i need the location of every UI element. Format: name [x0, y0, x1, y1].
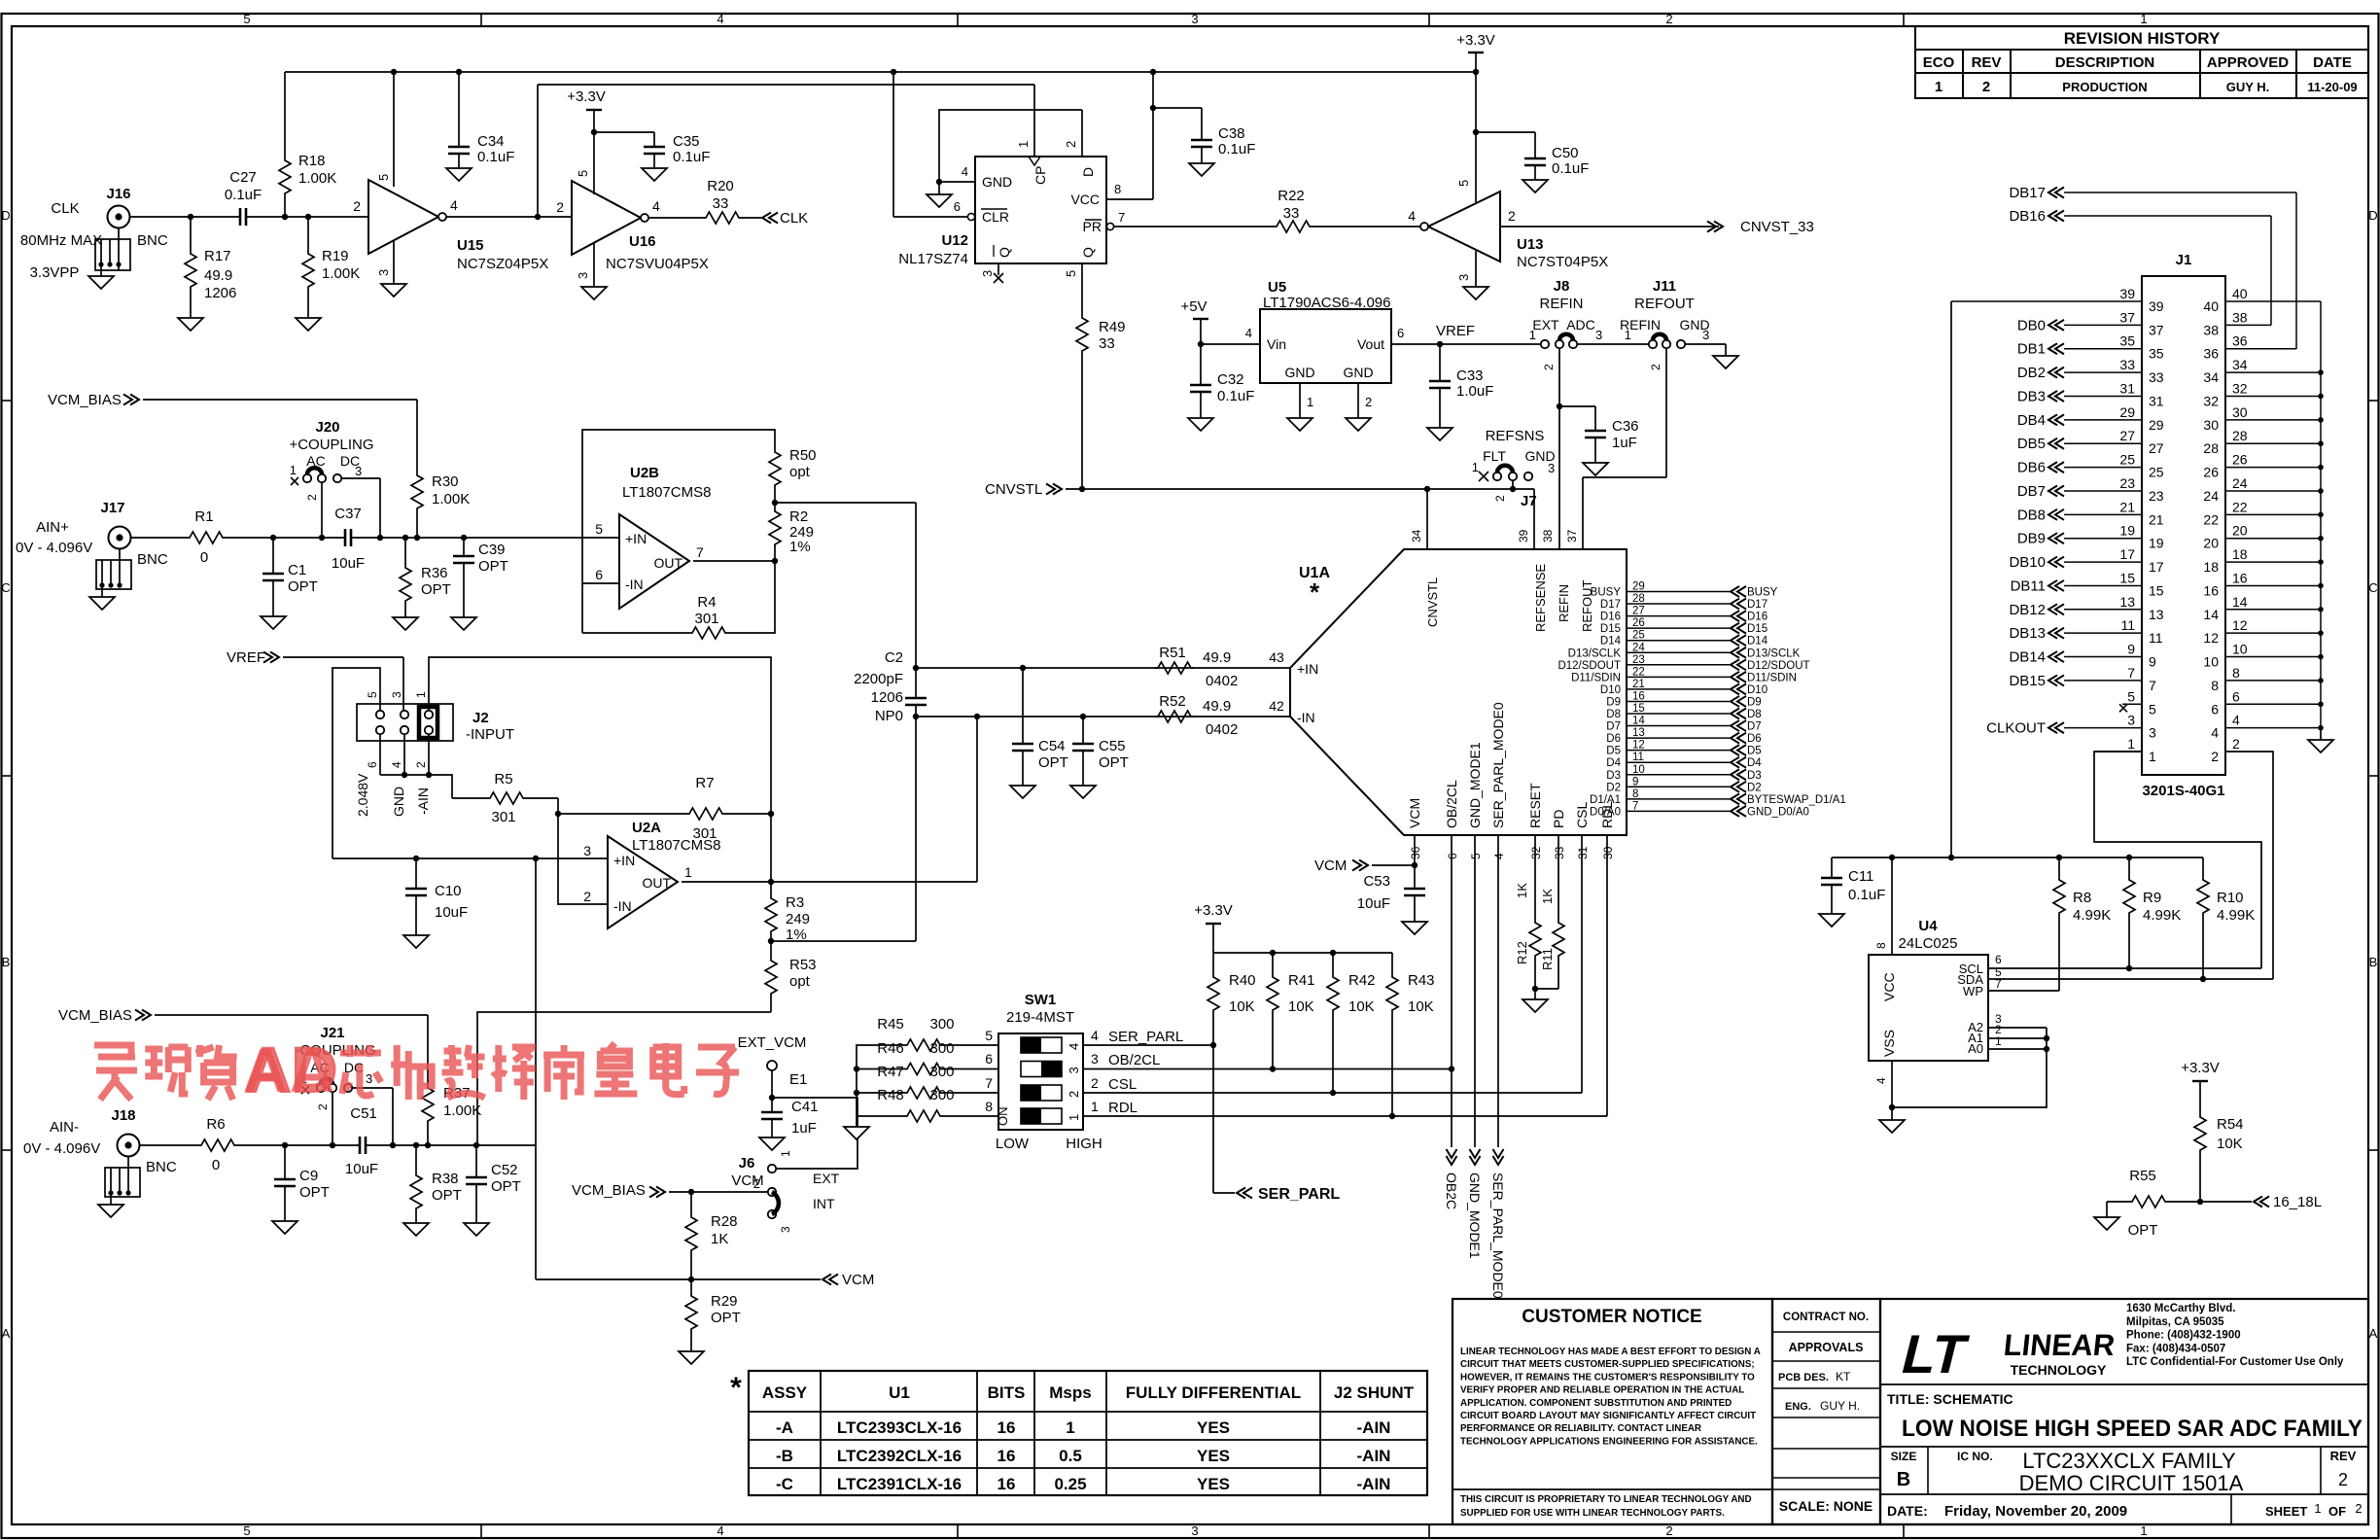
svg-text:U13: U13	[1517, 236, 1544, 253]
svg-text:7: 7	[2149, 678, 2156, 693]
svg-text:33: 33	[2119, 357, 2135, 372]
svg-text:7: 7	[1118, 210, 1125, 225]
svg-text:DB16: DB16	[2009, 208, 2046, 225]
svg-text:12: 12	[2232, 617, 2248, 633]
svg-text:opt: opt	[789, 464, 811, 480]
svg-text:2: 2	[1067, 1091, 1081, 1098]
svg-text:VCC: VCC	[1881, 972, 1897, 1001]
svg-text:OPT: OPT	[299, 1184, 330, 1201]
svg-text:GND: GND	[1284, 365, 1314, 380]
svg-text:TITLE: SCHEMATIC: TITLE: SCHEMATIC	[1887, 1391, 2013, 1407]
svg-text:1uF: 1uF	[791, 1120, 817, 1137]
svg-text:R20: R20	[707, 178, 734, 194]
svg-text:J16: J16	[106, 186, 130, 202]
svg-text:-AIN: -AIN	[1357, 1418, 1391, 1437]
svg-text:15: 15	[2119, 570, 2135, 585]
svg-text:0V - 4.096V: 0V - 4.096V	[23, 1140, 100, 1157]
svg-text:REFIN: REFIN	[1540, 296, 1584, 312]
svg-text:12: 12	[1632, 740, 1645, 752]
svg-text:1: 1	[684, 864, 692, 880]
svg-text:36: 36	[1409, 846, 1422, 859]
svg-text:219-4MST: 219-4MST	[1006, 1009, 1074, 1026]
svg-text:8: 8	[1632, 788, 1638, 800]
svg-text:REFIN: REFIN	[1557, 584, 1571, 622]
svg-text:VCM: VCM	[1314, 857, 1347, 874]
svg-text:10K: 10K	[1288, 998, 1314, 1015]
svg-text:4: 4	[717, 1523, 723, 1538]
svg-text:1.00K: 1.00K	[432, 491, 470, 507]
svg-text:1: 1	[2149, 749, 2156, 764]
svg-text:6: 6	[1446, 853, 1459, 859]
svg-text:37: 37	[2119, 309, 2135, 325]
svg-text:BITS: BITS	[988, 1383, 1026, 1402]
svg-text:C11: C11	[1848, 868, 1873, 885]
svg-text:OB2C: OB2C	[1444, 1172, 1459, 1209]
svg-text:OUT: OUT	[653, 555, 682, 571]
svg-text:R30: R30	[432, 473, 459, 490]
svg-text:A: A	[2, 1326, 11, 1341]
svg-text:NC7ST04P5X: NC7ST04P5X	[1517, 254, 1608, 270]
svg-text:1uF: 1uF	[1612, 435, 1637, 451]
svg-text:+3.3V: +3.3V	[1456, 32, 1495, 49]
svg-text:1: 1	[1066, 1418, 1074, 1437]
svg-text:3: 3	[1595, 328, 1602, 342]
svg-text:C51: C51	[350, 1105, 377, 1122]
svg-text:BNC: BNC	[137, 232, 168, 249]
svg-text:39: 39	[2149, 298, 2164, 314]
svg-text:VCM_BIAS: VCM_BIAS	[48, 392, 122, 408]
svg-text:R8: R8	[2073, 890, 2091, 906]
svg-text:17: 17	[2119, 546, 2135, 562]
svg-text:31: 31	[1576, 846, 1590, 859]
svg-text:D15: D15	[1747, 623, 1767, 635]
svg-text:7: 7	[1995, 977, 2002, 991]
svg-text:1: 1	[1625, 328, 1631, 342]
svg-text:A: A	[2369, 1326, 2378, 1341]
svg-text:3: 3	[1191, 1523, 1198, 1538]
svg-text:24LC025: 24LC025	[1899, 935, 1958, 952]
svg-text:R53: R53	[789, 957, 817, 973]
svg-text:9: 9	[2149, 654, 2156, 670]
svg-text:3: 3	[1067, 1067, 1081, 1073]
svg-text:5: 5	[243, 12, 250, 26]
svg-text:1K: 1K	[711, 1231, 728, 1247]
svg-text:R48: R48	[877, 1087, 904, 1103]
svg-text:NC7SVU04P5X: NC7SVU04P5X	[606, 256, 709, 272]
svg-text:U12: U12	[941, 232, 968, 249]
svg-text:13: 13	[1632, 727, 1645, 739]
svg-text:J1: J1	[2176, 252, 2192, 268]
svg-text:15: 15	[1632, 703, 1645, 715]
svg-text:Vin: Vin	[1267, 336, 1286, 352]
svg-text:REV: REV	[2330, 1449, 2357, 1463]
svg-text:DB2: DB2	[2017, 365, 2046, 381]
svg-text:2: 2	[1649, 364, 1662, 370]
svg-text:C32: C32	[1217, 371, 1244, 388]
svg-text:10K: 10K	[1408, 998, 1434, 1015]
svg-text:LINEAR TECHNOLOGY HAS MADE A B: LINEAR TECHNOLOGY HAS MADE A BEST EFFORT…	[1460, 1347, 1761, 1357]
svg-text:7: 7	[985, 1075, 993, 1091]
svg-text:5: 5	[2127, 688, 2135, 704]
svg-text:36: 36	[2203, 346, 2219, 362]
svg-text:6: 6	[2232, 688, 2240, 704]
svg-text:R19: R19	[322, 248, 349, 264]
svg-text:RDL: RDL	[1599, 801, 1615, 828]
svg-text:CUSTOMER NOTICE: CUSTOMER NOTICE	[1522, 1307, 1701, 1327]
svg-text:5: 5	[576, 170, 590, 177]
svg-text:J18: J18	[111, 1107, 135, 1124]
svg-text:25: 25	[2149, 465, 2164, 480]
svg-text:U15: U15	[457, 237, 484, 254]
svg-text:301: 301	[694, 611, 718, 627]
svg-text:R38: R38	[432, 1171, 459, 1187]
svg-text:2: 2	[1982, 79, 1990, 95]
svg-text:2: 2	[1091, 1075, 1099, 1091]
svg-text:33: 33	[1099, 335, 1115, 352]
svg-text:R43: R43	[1408, 972, 1435, 989]
svg-text:C1: C1	[288, 562, 306, 578]
svg-text:11: 11	[2120, 617, 2135, 633]
svg-text:B: B	[2, 955, 11, 969]
svg-text:2: 2	[1508, 208, 1516, 224]
svg-text:SCALE: NONE: SCALE: NONE	[1779, 1498, 1872, 1514]
svg-text:3: 3	[2149, 725, 2156, 741]
svg-text:D15: D15	[1600, 623, 1621, 635]
svg-text:37: 37	[2149, 322, 2164, 337]
svg-text:1: 1	[2140, 1523, 2147, 1538]
svg-text:U4: U4	[1918, 918, 1938, 934]
svg-text:DB12: DB12	[2009, 602, 2046, 618]
svg-text:OF: OF	[2328, 1504, 2346, 1519]
svg-text:3201S-40G1: 3201S-40G1	[2142, 783, 2224, 799]
svg-text:D7: D7	[1747, 721, 1762, 733]
svg-text:0.1uF: 0.1uF	[1552, 160, 1589, 177]
svg-text:D7: D7	[1606, 721, 1621, 733]
svg-text:33: 33	[713, 195, 729, 212]
svg-text:VERIFY PROPER AND RELIABLE OPE: VERIFY PROPER AND RELIABLE OPERATION IN …	[1460, 1385, 1744, 1396]
svg-text:1: 1	[414, 691, 428, 698]
svg-text:10: 10	[2203, 654, 2219, 670]
svg-text:2: 2	[556, 199, 564, 215]
svg-text:OPT: OPT	[478, 558, 508, 575]
svg-text:CSL: CSL	[1108, 1076, 1137, 1093]
svg-text:11-20-09: 11-20-09	[2307, 80, 2357, 94]
svg-text:R7: R7	[695, 775, 714, 791]
svg-text:U1: U1	[889, 1383, 910, 1402]
svg-text:3: 3	[376, 269, 391, 276]
svg-text:35: 35	[2149, 346, 2164, 362]
svg-text:R12: R12	[1515, 941, 1529, 964]
svg-text:D17: D17	[1600, 599, 1621, 611]
svg-text:33: 33	[1553, 846, 1566, 859]
svg-text:4.99K: 4.99K	[2217, 907, 2255, 924]
svg-text:CNVSTL: CNVSTL	[1425, 577, 1440, 627]
svg-text:1.00K: 1.00K	[322, 265, 360, 282]
svg-text:2: 2	[2232, 736, 2240, 752]
svg-text:2: 2	[414, 761, 428, 768]
svg-text:A0: A0	[1968, 1041, 1983, 1056]
svg-text:D: D	[1, 208, 10, 223]
svg-text:1: 1	[2140, 12, 2147, 26]
svg-text:+5V: +5V	[1180, 298, 1207, 315]
svg-text:3.3VPP: 3.3VPP	[30, 264, 80, 281]
svg-text:CONTRACT NO.: CONTRACT NO.	[1783, 1312, 1869, 1323]
svg-text:D6: D6	[1606, 733, 1621, 745]
svg-text:1: 1	[1995, 1034, 2002, 1048]
svg-text:D12/SDOUT: D12/SDOUT	[1557, 660, 1621, 672]
svg-text:16: 16	[997, 1418, 1016, 1437]
svg-text:16: 16	[1632, 690, 1645, 702]
svg-text:+IN: +IN	[613, 853, 635, 868]
svg-text:C54: C54	[1038, 738, 1066, 754]
svg-text:+3.3V: +3.3V	[1194, 902, 1233, 919]
svg-text:R22: R22	[1277, 188, 1305, 204]
svg-text:CLR: CLR	[982, 209, 1009, 225]
svg-text:VCM_BIAS: VCM_BIAS	[572, 1182, 646, 1199]
svg-text:14: 14	[2203, 607, 2219, 622]
svg-text:3: 3	[355, 464, 362, 478]
svg-text:17: 17	[2149, 559, 2164, 575]
svg-text:0.1uF: 0.1uF	[225, 187, 262, 203]
svg-text:J11: J11	[1653, 278, 1676, 295]
svg-text:C55: C55	[1099, 738, 1126, 754]
svg-text:1206: 1206	[871, 689, 903, 706]
svg-text:0.1uF: 0.1uF	[1217, 388, 1254, 404]
svg-text:C36: C36	[1612, 418, 1639, 435]
svg-text:CSL: CSL	[1574, 802, 1590, 828]
svg-text:14: 14	[1632, 716, 1645, 727]
svg-text:ASSY: ASSY	[762, 1383, 808, 1402]
svg-text:D14: D14	[1600, 636, 1622, 647]
svg-text:D10: D10	[1600, 684, 1621, 696]
svg-text:10: 10	[1632, 764, 1645, 776]
svg-text:8: 8	[2232, 665, 2240, 681]
svg-text:6: 6	[954, 199, 961, 214]
svg-text:0.25: 0.25	[1054, 1475, 1086, 1493]
svg-text:300: 300	[929, 1064, 954, 1080]
svg-text:EXT: EXT	[813, 1171, 840, 1186]
svg-text:4: 4	[1245, 326, 1252, 340]
svg-text:0.1uF: 0.1uF	[1848, 887, 1885, 903]
svg-text:TECHNOLOGY APPLICATIONS ENGINE: TECHNOLOGY APPLICATIONS ENGINEERING FOR …	[1460, 1436, 1758, 1447]
svg-text:30: 30	[2203, 417, 2219, 433]
svg-text:38: 38	[2203, 322, 2219, 337]
svg-text:2: 2	[353, 198, 361, 214]
svg-text:R1: R1	[194, 508, 213, 525]
svg-text:DB7: DB7	[2017, 483, 2046, 500]
svg-text:3: 3	[1091, 1051, 1099, 1067]
svg-text:5: 5	[1469, 853, 1483, 859]
svg-text:1: 1	[1091, 1099, 1099, 1114]
svg-text:VCM_BIAS: VCM_BIAS	[58, 1007, 132, 1024]
svg-text:LOW NOISE HIGH SPEED SAR ADC F: LOW NOISE HIGH SPEED SAR ADC FAMILY	[1902, 1416, 2362, 1442]
svg-text:LTC23XXCLX FAMILY: LTC23XXCLX FAMILY	[2022, 1449, 2236, 1473]
svg-text:10uF: 10uF	[1357, 895, 1390, 912]
svg-text:Q: Q	[997, 247, 1012, 258]
svg-text:4: 4	[1408, 208, 1416, 224]
svg-text:D17: D17	[1747, 599, 1767, 611]
svg-text:D4: D4	[1606, 757, 1621, 769]
svg-text:13: 13	[2119, 594, 2135, 610]
svg-text:+IN: +IN	[625, 531, 647, 546]
svg-text:INT: INT	[813, 1196, 835, 1211]
svg-text:34: 34	[2203, 369, 2219, 385]
svg-text:LINEAR: LINEAR	[2002, 1328, 2117, 1362]
svg-text:R29: R29	[711, 1293, 738, 1310]
svg-text:DB1: DB1	[2017, 341, 2046, 358]
svg-text:21: 21	[2149, 511, 2164, 527]
svg-text:AIN+: AIN+	[36, 519, 69, 536]
svg-text:3: 3	[576, 272, 590, 279]
svg-text:29: 29	[1632, 581, 1645, 593]
svg-text:D4: D4	[1747, 757, 1762, 769]
svg-text:R5: R5	[494, 771, 512, 787]
svg-text:5: 5	[595, 521, 603, 537]
svg-text:4: 4	[962, 164, 968, 179]
svg-text:DB10: DB10	[2009, 554, 2046, 571]
svg-text:38: 38	[2232, 309, 2248, 325]
svg-text:5: 5	[2149, 701, 2156, 717]
svg-text:R50: R50	[789, 447, 817, 464]
svg-text:R10: R10	[2217, 890, 2244, 906]
svg-text:33: 33	[2149, 369, 2164, 385]
svg-text:2: 2	[1064, 141, 1078, 148]
svg-text:16: 16	[2203, 582, 2219, 598]
svg-text:OPT: OPT	[288, 578, 318, 595]
svg-text:OUT: OUT	[642, 875, 671, 891]
svg-text:YES: YES	[1197, 1475, 1230, 1493]
svg-text:CLKOUT: CLKOUT	[1986, 720, 2046, 737]
svg-text:C50: C50	[1552, 145, 1579, 161]
svg-text:C41: C41	[791, 1099, 819, 1115]
svg-text:LT1790ACS6-4.096: LT1790ACS6-4.096	[1263, 295, 1390, 311]
svg-text:1.00K: 1.00K	[443, 1102, 481, 1119]
svg-text:D14: D14	[1747, 636, 1768, 647]
svg-text:-IN: -IN	[625, 577, 644, 592]
svg-text:22: 22	[2232, 499, 2248, 514]
svg-text:23: 23	[1632, 654, 1645, 666]
svg-text:-IN: -IN	[613, 898, 632, 914]
svg-text:4: 4	[390, 761, 403, 768]
svg-text:12: 12	[2203, 630, 2219, 646]
svg-text:26: 26	[2232, 452, 2248, 468]
svg-text:GND: GND	[982, 174, 1012, 190]
svg-text:3: 3	[779, 1226, 792, 1233]
svg-text:-AIN: -AIN	[1357, 1475, 1391, 1493]
svg-text:3: 3	[2127, 713, 2135, 728]
svg-text:39: 39	[2119, 286, 2135, 301]
svg-text:SER_PARL_MODE0: SER_PARL_MODE0	[1490, 1172, 1506, 1299]
svg-text:8: 8	[1874, 942, 1888, 949]
svg-text:DB3: DB3	[2017, 388, 2046, 404]
svg-text:opt: opt	[789, 973, 811, 990]
svg-text:THIS CIRCUIT IS PROPRIETARY TO: THIS CIRCUIT IS PROPRIETARY TO LINEAR TE…	[1460, 1494, 1752, 1505]
svg-text:3: 3	[390, 691, 403, 698]
svg-text:D8: D8	[1606, 709, 1621, 720]
svg-text:4: 4	[1492, 853, 1506, 859]
svg-text:C27: C27	[229, 169, 257, 186]
svg-text:DB0: DB0	[2017, 317, 2046, 333]
svg-text:14: 14	[2232, 594, 2248, 610]
svg-text:GUY H.: GUY H.	[2226, 80, 2270, 94]
svg-text:LTC2392CLX-16: LTC2392CLX-16	[837, 1447, 962, 1465]
svg-text:BNC: BNC	[146, 1159, 177, 1175]
svg-text:4.99K: 4.99K	[2143, 907, 2181, 924]
svg-text:4: 4	[717, 12, 723, 26]
svg-text:1: 1	[290, 463, 297, 477]
svg-text:Friday, November 20, 2009: Friday, November 20, 2009	[1944, 1503, 2127, 1520]
svg-text:D3: D3	[1747, 770, 1762, 782]
svg-text:DB14: DB14	[2009, 649, 2046, 666]
svg-text:BUSY: BUSY	[1591, 587, 1622, 599]
svg-text:2: 2	[1365, 395, 1372, 409]
svg-text:30: 30	[1601, 846, 1615, 859]
svg-text:4.99K: 4.99K	[2073, 907, 2111, 924]
svg-text:D: D	[1080, 167, 1096, 177]
svg-text:U16: U16	[629, 233, 656, 250]
svg-text:R54: R54	[2217, 1116, 2244, 1133]
svg-text:APPROVED: APPROVED	[2207, 54, 2289, 71]
svg-text:R6: R6	[206, 1116, 225, 1133]
svg-text:1630 McCarthy Blvd.: 1630 McCarthy Blvd.	[2126, 1303, 2236, 1314]
svg-text:APPLICATION. COMPONENT SUBSTI: APPLICATION. COMPONENT SUBSTITUTION AND …	[1460, 1398, 1732, 1409]
svg-text:TECHNOLOGY: TECHNOLOGY	[2011, 1362, 2107, 1378]
svg-text:LTC Confidential-For Customer: LTC Confidential-For Customer Use Only	[2126, 1356, 2344, 1368]
svg-text:Fax: (408)434-0507: Fax: (408)434-0507	[2126, 1343, 2225, 1354]
svg-text:1: 1	[2127, 736, 2135, 752]
svg-text:REFSNS: REFSNS	[1486, 428, 1545, 444]
svg-text:2: 2	[1665, 1523, 1672, 1538]
svg-text:SW1: SW1	[1025, 992, 1057, 1008]
svg-text:0.1uF: 0.1uF	[1218, 141, 1255, 157]
svg-text:EXT_VCM: EXT_VCM	[738, 1034, 807, 1051]
svg-text:DB13: DB13	[2009, 625, 2046, 642]
svg-text:PRODUCTION: PRODUCTION	[2062, 80, 2147, 94]
svg-text:*: *	[1310, 577, 1320, 607]
svg-text:Q: Q	[1080, 247, 1096, 258]
svg-text:32: 32	[2203, 393, 2219, 408]
svg-text:J17: J17	[100, 500, 124, 516]
svg-text:D2: D2	[1747, 782, 1762, 793]
svg-text:7: 7	[696, 544, 704, 560]
svg-text:-C: -C	[776, 1475, 793, 1493]
svg-text:SIZE: SIZE	[1891, 1450, 1917, 1463]
svg-text:ADC: ADC	[1566, 317, 1595, 332]
svg-text:GND_MODE1: GND_MODE1	[1467, 1172, 1483, 1259]
svg-text:3: 3	[583, 843, 591, 858]
svg-text:DB11: DB11	[2011, 577, 2046, 594]
svg-text:0402: 0402	[1206, 673, 1238, 689]
svg-text:D3: D3	[1606, 770, 1621, 782]
svg-text:300: 300	[929, 1016, 954, 1032]
svg-text:21: 21	[2119, 499, 2135, 514]
svg-text:CNVST_33: CNVST_33	[1740, 219, 1814, 235]
svg-text:FULLY DIFFERENTIAL: FULLY DIFFERENTIAL	[1126, 1383, 1301, 1402]
svg-text:2: 2	[1542, 364, 1556, 370]
svg-text:18: 18	[2203, 559, 2219, 575]
svg-text:8: 8	[2211, 678, 2219, 693]
svg-text:300: 300	[929, 1087, 954, 1103]
svg-text:C: C	[1, 580, 10, 595]
svg-text:4: 4	[1874, 1077, 1888, 1084]
svg-text:10K: 10K	[2217, 1136, 2243, 1152]
svg-text:OB/2CL: OB/2CL	[1444, 780, 1459, 828]
svg-text:DEMO CIRCUIT 1501A: DEMO CIRCUIT 1501A	[2019, 1471, 2244, 1495]
svg-text:27: 27	[2119, 428, 2135, 443]
svg-text:301: 301	[491, 809, 515, 825]
svg-text:CNVSTL: CNVSTL	[985, 481, 1042, 498]
svg-text:24: 24	[1632, 642, 1645, 653]
